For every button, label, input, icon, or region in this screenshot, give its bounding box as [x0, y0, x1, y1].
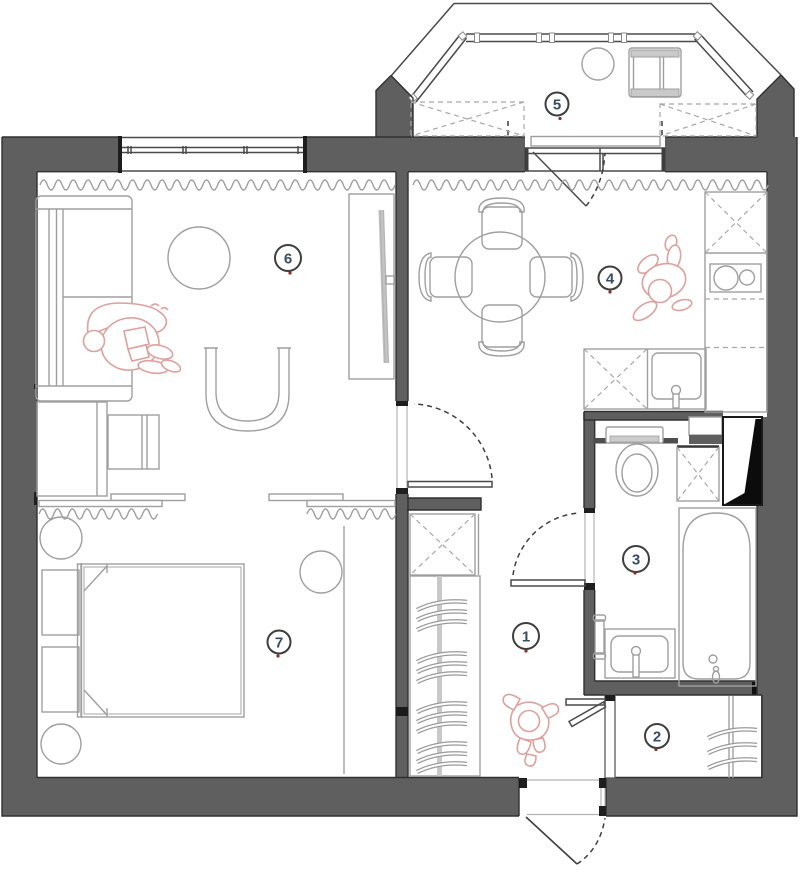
svg-text:4: 4 — [606, 271, 615, 288]
svg-text:3: 3 — [632, 552, 640, 569]
svg-text:5: 5 — [553, 97, 561, 114]
svg-text:6: 6 — [284, 251, 292, 268]
svg-text:1: 1 — [522, 629, 530, 646]
svg-text:2: 2 — [653, 729, 661, 746]
svg-text:7: 7 — [275, 635, 283, 652]
